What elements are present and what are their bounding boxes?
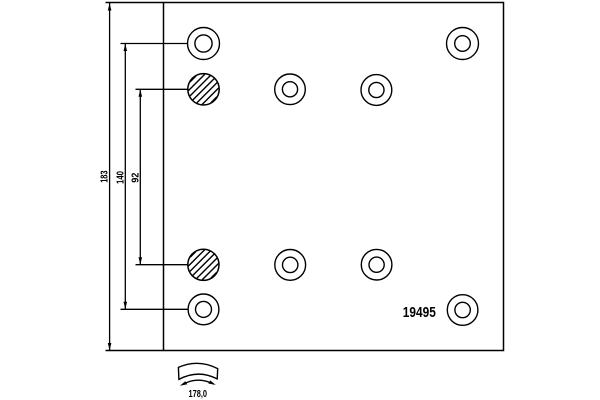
- svg-text:183: 183: [100, 170, 111, 183]
- svg-text:140: 140: [115, 171, 126, 184]
- svg-text:178,0: 178,0: [189, 388, 208, 400]
- svg-text:19495: 19495: [403, 305, 436, 321]
- svg-text:92: 92: [130, 172, 141, 183]
